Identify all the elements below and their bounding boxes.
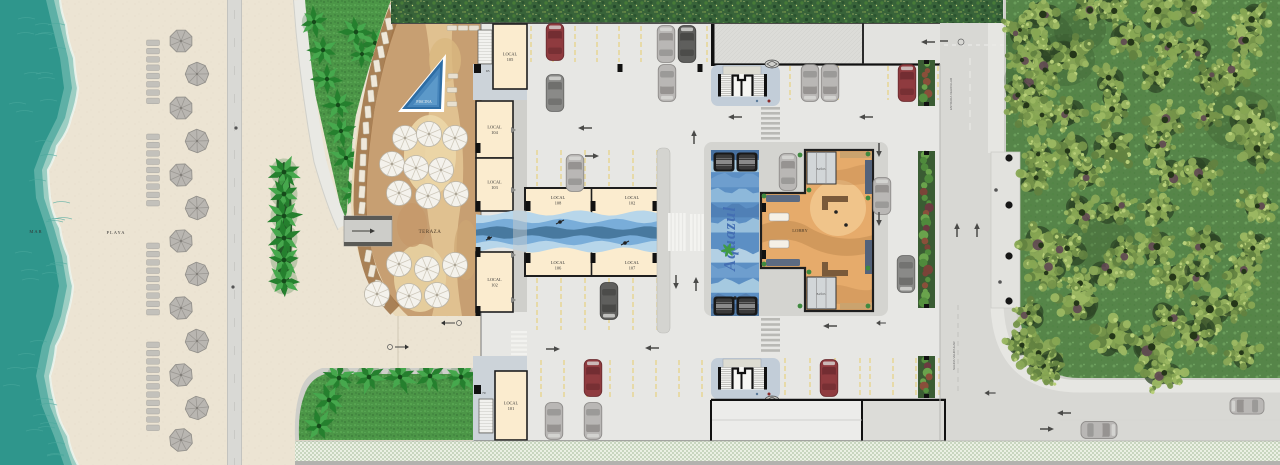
svg-text:LOCAL: LOCAL bbox=[504, 401, 519, 406]
svg-text:LOCAL: LOCAL bbox=[551, 260, 566, 265]
svg-text:LOCAL: LOCAL bbox=[503, 52, 518, 57]
svg-text:SALIDA VEHICULAR: SALIDA VEHICULAR bbox=[952, 341, 956, 370]
svg-text:ENTRADA VEHICULAR: ENTRADA VEHICULAR bbox=[949, 77, 953, 110]
svg-text:LOCAL: LOCAL bbox=[625, 195, 640, 200]
svg-text:105: 105 bbox=[507, 57, 513, 62]
svg-text:107: 107 bbox=[629, 266, 636, 271]
svg-text:70: 70 bbox=[482, 391, 486, 395]
svg-text:BAÑOS: BAÑOS bbox=[817, 168, 826, 171]
svg-text:65: 65 bbox=[486, 69, 490, 73]
svg-text:PLAYA: PLAYA bbox=[106, 230, 125, 235]
svg-text:LOCAL: LOCAL bbox=[487, 180, 502, 185]
svg-text:LOCAL: LOCAL bbox=[487, 277, 502, 282]
svg-text:TERAZA: TERAZA bbox=[419, 230, 442, 235]
svg-text:101: 101 bbox=[508, 406, 514, 411]
svg-text:106: 106 bbox=[555, 266, 562, 271]
svg-text:108: 108 bbox=[555, 201, 561, 206]
svg-text:MAR: MAR bbox=[29, 229, 42, 234]
svg-text:LOBBY: LOBBY bbox=[792, 228, 808, 233]
svg-text:102: 102 bbox=[491, 283, 497, 288]
svg-text:104: 104 bbox=[491, 130, 498, 135]
svg-text:BAÑOS: BAÑOS bbox=[817, 293, 826, 296]
svg-text:102: 102 bbox=[629, 201, 635, 206]
svg-text:103: 103 bbox=[491, 185, 497, 190]
svg-text:PISCINA: PISCINA bbox=[416, 99, 432, 104]
svg-text:Aquazul: Aquazul bbox=[720, 206, 739, 272]
svg-text:LOCAL: LOCAL bbox=[551, 195, 566, 200]
svg-text:LOCAL: LOCAL bbox=[625, 260, 640, 265]
svg-text:LOCAL: LOCAL bbox=[487, 125, 502, 130]
